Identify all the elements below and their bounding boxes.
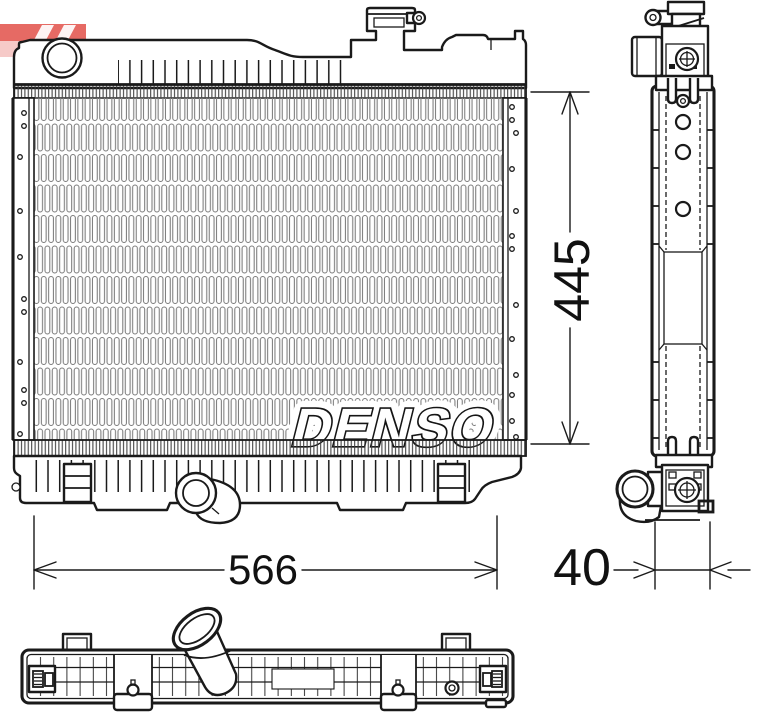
small-hole: [677, 95, 689, 107]
mounting-hole: [676, 115, 690, 129]
bottom-view-drain-hole: [446, 682, 459, 695]
bottom-view-bracket-right: [381, 655, 416, 710]
core-fin-area: [34, 98, 503, 440]
dimension-height: 445: [531, 92, 600, 444]
mounting-hole: [676, 202, 690, 216]
radiator-technical-drawing: DENSO DENSO: [0, 0, 761, 716]
bottom-header-plate: [14, 440, 526, 456]
bottom-view-bracket-left: [114, 655, 152, 710]
dimension-depth: 40: [553, 522, 750, 597]
bracket-hole: [128, 685, 139, 696]
top-header-plate: [14, 85, 526, 98]
bottom-view: [22, 600, 513, 710]
side-top-base: [656, 76, 712, 90]
left-side-frame: [13, 98, 34, 440]
side-overflow-pipe-end: [646, 10, 661, 25]
bottom-tank-ribs: [26, 460, 478, 492]
bottom-view-left-connector: [29, 666, 55, 692]
bottom-tank: [12, 456, 521, 523]
side-hook: [690, 78, 698, 103]
arrow-right-icon: [614, 562, 655, 578]
top-tank-ribs: [118, 60, 348, 84]
side-body: [652, 86, 714, 456]
side-filler-cap: [668, 2, 704, 14]
drawing-svg: DENSO DENSO: [0, 0, 761, 716]
top-tank: [14, 8, 526, 88]
front-view: DENSO DENSO: [12, 8, 526, 523]
mounting-hole: [676, 145, 690, 159]
width-dimension-label: 566: [228, 546, 298, 593]
bottom-view-grid: [30, 657, 505, 696]
outlet-flange-outer: [176, 473, 216, 513]
overflow-nozzle: [413, 12, 425, 24]
bottom-bracket-left: [64, 464, 91, 502]
side-view: [617, 2, 714, 522]
arrow-left-icon: [710, 562, 750, 578]
depth-dimension-label: 40: [553, 539, 611, 597]
dimension-width: 566: [34, 516, 497, 593]
bottom-view-label-plate: [272, 669, 334, 689]
bottom-bracket-right: [438, 464, 465, 502]
height-dimension-label: 445: [544, 238, 600, 321]
bracket-hole: [393, 685, 404, 696]
side-hook: [668, 78, 676, 103]
side-body-outline: [652, 86, 714, 456]
right-side-frame: [503, 98, 526, 440]
radiator-core: [13, 98, 526, 440]
